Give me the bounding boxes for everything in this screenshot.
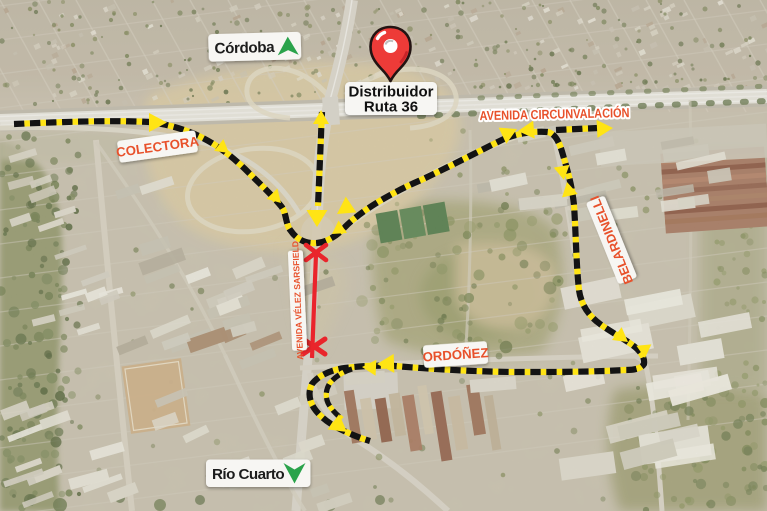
svg-text:AVENIDA CIRCUNVALACIÓN: AVENIDA CIRCUNVALACIÓN <box>479 105 629 123</box>
svg-text:Río Cuarto: Río Cuarto <box>212 466 284 483</box>
svg-text:Ruta 36: Ruta 36 <box>364 99 418 116</box>
svg-text:Córdoba: Córdoba <box>214 39 275 58</box>
